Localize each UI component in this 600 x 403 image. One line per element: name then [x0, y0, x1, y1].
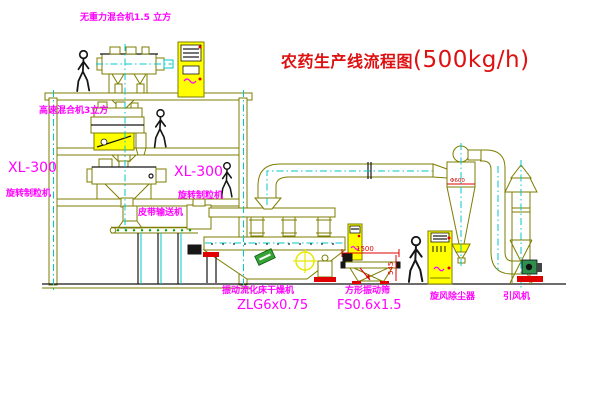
person-figure	[77, 51, 89, 91]
label-belt-conveyor: 皮带输送机	[137, 206, 183, 218]
label-high-speed-mixer: 高速混合机3立方	[39, 104, 108, 116]
label-xl300-left: XL-300	[8, 160, 57, 176]
label-cyclone: 旋风除尘器	[429, 290, 476, 302]
label-dryer-model: ZLG6x0.75	[237, 298, 308, 313]
dryer-left-mount	[203, 252, 219, 257]
title-text: 农药生产线流程图	[281, 52, 413, 71]
person-figure	[222, 163, 232, 198]
label-granulator-left: 旋转制粒机	[5, 187, 51, 199]
label-fan: 引风机	[503, 290, 530, 302]
flow-diagram: Φ600	[0, 0, 600, 403]
dryer-spigots	[249, 217, 332, 236]
gravity-free-mixer	[96, 47, 173, 93]
control-cabinet-right	[428, 231, 452, 284]
label-sieve: 方形振动筛	[345, 284, 390, 296]
label-sieve-model: FS0.6x1.5	[337, 298, 402, 313]
belt-rollers	[117, 229, 191, 231]
person-figure	[155, 110, 166, 148]
control-cabinet-top	[178, 42, 204, 97]
indicator-light-icon	[358, 235, 361, 238]
exhaust-duct	[255, 162, 447, 209]
dim-545: 545	[387, 262, 395, 275]
cyclone-diameter-label: Φ600	[450, 178, 465, 184]
title-capacity: (500kg/h)	[413, 47, 530, 73]
indicator-light-icon	[448, 267, 451, 270]
label-gravity-mixer: 无重力混合机1.5 立方	[79, 11, 171, 23]
indicator-light-icon	[199, 46, 202, 49]
fluid-bed-dryer	[187, 199, 345, 283]
label-dryer: 振动流化床干燥机	[222, 284, 294, 296]
diagram-title: 农药生产线流程图(500kg/h)	[281, 47, 530, 73]
indicator-light-icon	[199, 78, 202, 81]
person-figure	[409, 237, 422, 282]
label-granulator-mid: 旋转制粒机	[177, 189, 223, 201]
label-xl300-mid: XL-300	[174, 164, 223, 180]
dim-1500: 1500	[356, 245, 374, 253]
indicator-light-icon	[448, 237, 451, 240]
